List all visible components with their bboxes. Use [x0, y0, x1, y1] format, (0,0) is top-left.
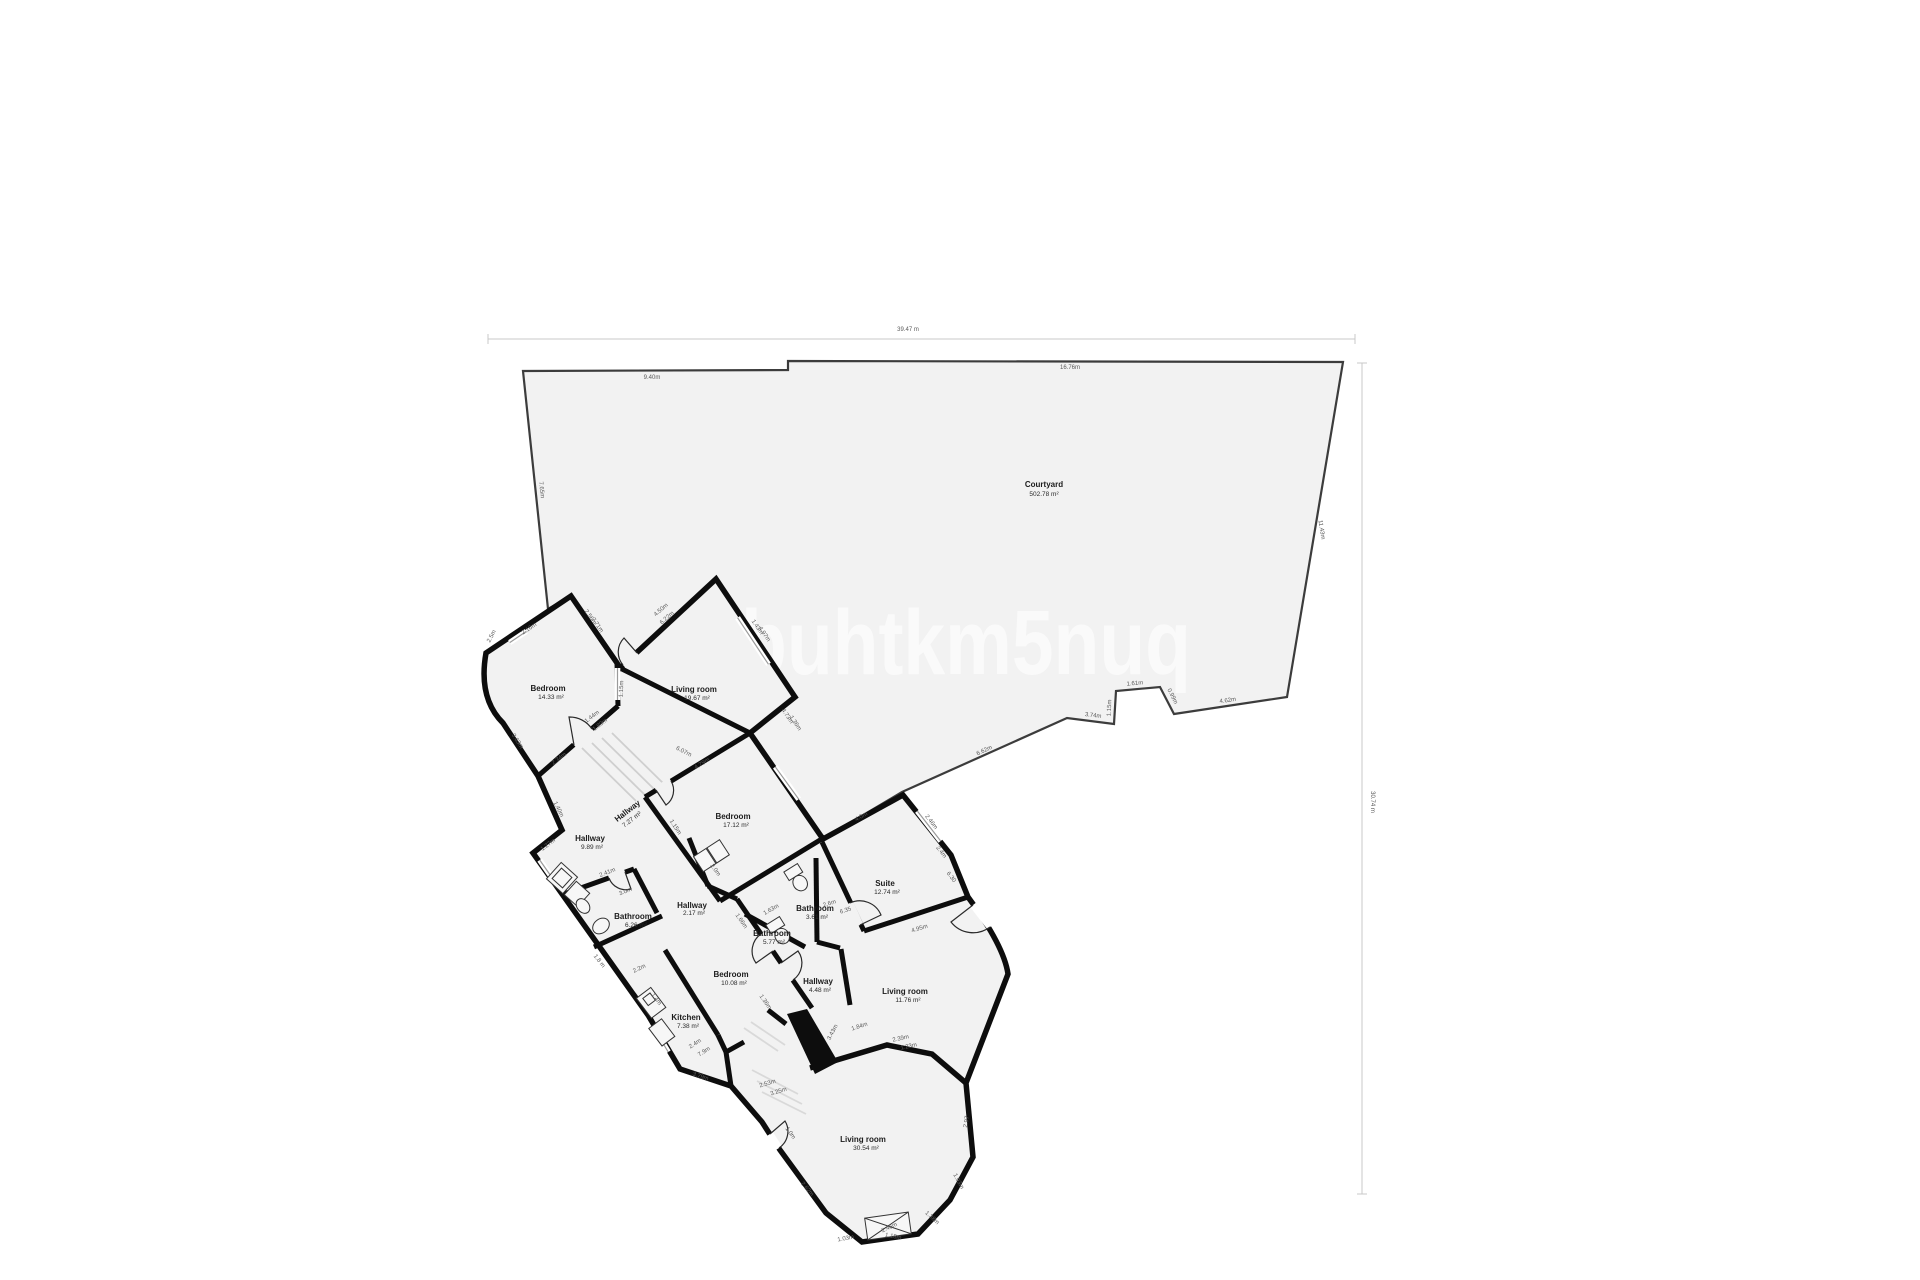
svg-text:Bathroom: Bathroom	[753, 929, 791, 938]
svg-text:14.33 m²: 14.33 m²	[538, 694, 564, 701]
svg-text:9.89 m²: 9.89 m²	[581, 844, 604, 851]
svg-text:3.61 m²: 3.61 m²	[806, 914, 829, 921]
svg-text:9.40m: 9.40m	[644, 375, 661, 381]
svg-text:17.12 m²: 17.12 m²	[723, 822, 749, 829]
svg-text:Hallway: Hallway	[677, 901, 707, 910]
svg-text:2.17 m²: 2.17 m²	[683, 910, 706, 917]
svg-text:Living room: Living room	[840, 1135, 886, 1144]
svg-text:11.76 m²: 11.76 m²	[895, 997, 921, 1004]
svg-text:Courtyard: Courtyard	[1025, 480, 1063, 489]
svg-text:Living room: Living room	[882, 987, 928, 996]
svg-text:7.38 m²: 7.38 m²	[677, 1023, 700, 1030]
svg-text:Living room: Living room	[671, 685, 717, 694]
svg-text:Hallway: Hallway	[575, 834, 605, 843]
svg-text:19.67 m²: 19.67 m²	[684, 695, 710, 702]
svg-text:30.54 m²: 30.54 m²	[853, 1145, 879, 1152]
svg-text:Suite: Suite	[875, 879, 895, 888]
svg-text:5.77 m²: 5.77 m²	[763, 939, 786, 946]
svg-text:39.47 m: 39.47 m	[897, 327, 919, 333]
svg-text:1.15m: 1.15m	[619, 680, 626, 697]
svg-text:Hallway: Hallway	[803, 977, 833, 986]
svg-text:16.76m: 16.76m	[1060, 365, 1080, 371]
svg-text:Bathroom: Bathroom	[614, 912, 652, 921]
svg-text:buhtkm5nuq: buhtkm5nuq	[741, 592, 1191, 694]
svg-text:12.74 m²: 12.74 m²	[874, 889, 900, 896]
svg-text:502.78 m²: 502.78 m²	[1029, 491, 1059, 498]
svg-text:10.08 m²: 10.08 m²	[721, 980, 747, 987]
svg-text:30.74 m: 30.74 m	[1369, 791, 1375, 813]
svg-text:Bedroom: Bedroom	[715, 812, 750, 821]
svg-text:4.48 m²: 4.48 m²	[809, 987, 832, 994]
svg-text:1.15m: 1.15m	[1107, 699, 1114, 716]
svg-text:6.26 m²: 6.26 m²	[625, 922, 648, 929]
svg-text:Bedroom: Bedroom	[530, 684, 565, 693]
svg-text:Bedroom: Bedroom	[713, 970, 748, 979]
svg-text:Kitchen: Kitchen	[671, 1013, 700, 1022]
